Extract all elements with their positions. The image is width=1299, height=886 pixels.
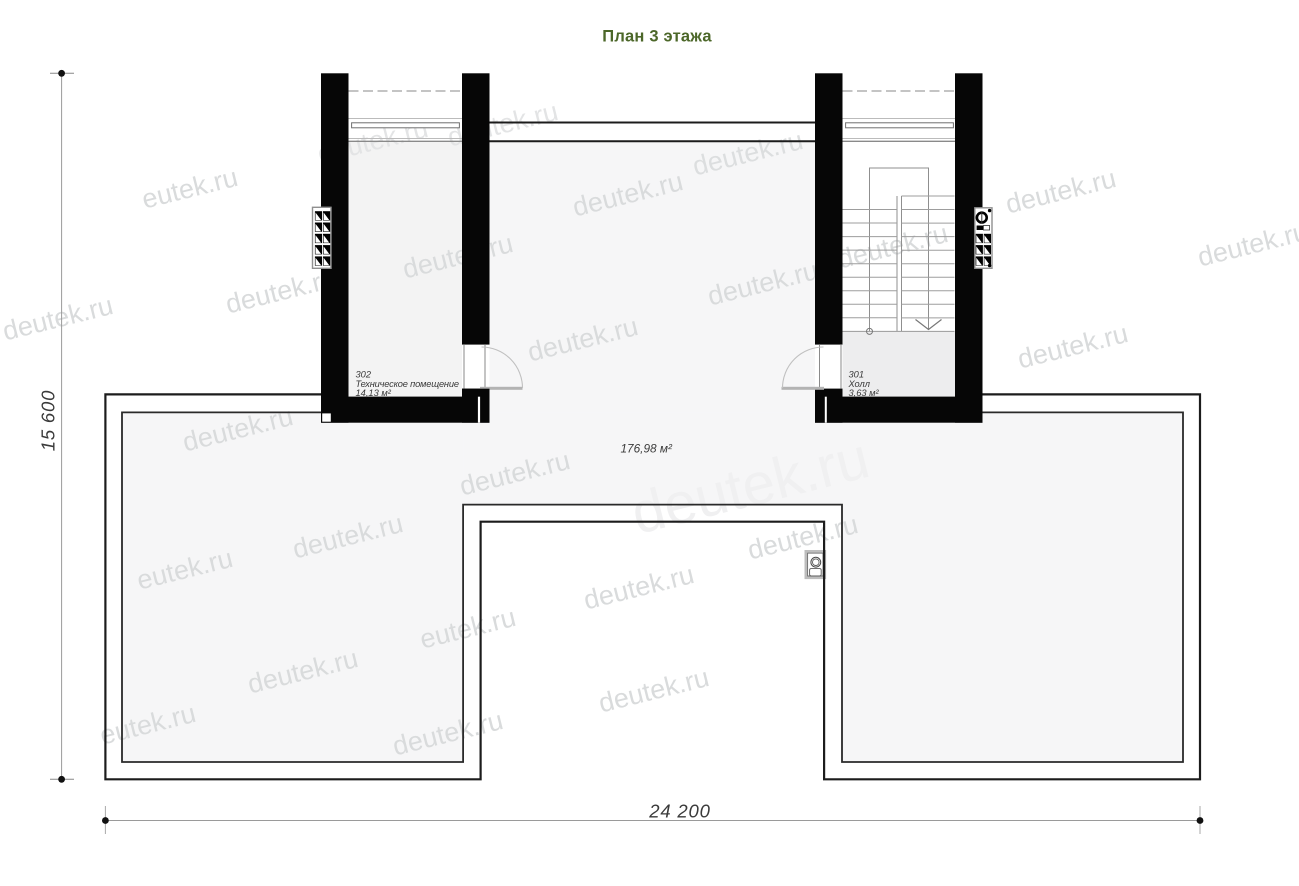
svg-text:План 3 этажа: План 3 этажа <box>602 27 712 45</box>
svg-text:302: 302 <box>356 370 372 380</box>
svg-text:15 600: 15 600 <box>38 390 59 451</box>
svg-text:14,13 м²: 14,13 м² <box>356 388 392 398</box>
svg-text:301: 301 <box>849 370 865 380</box>
svg-text:176,98 м²: 176,98 м² <box>621 442 673 456</box>
svg-text:3,63 м²: 3,63 м² <box>849 388 880 398</box>
svg-text:24 200: 24 200 <box>648 801 710 822</box>
